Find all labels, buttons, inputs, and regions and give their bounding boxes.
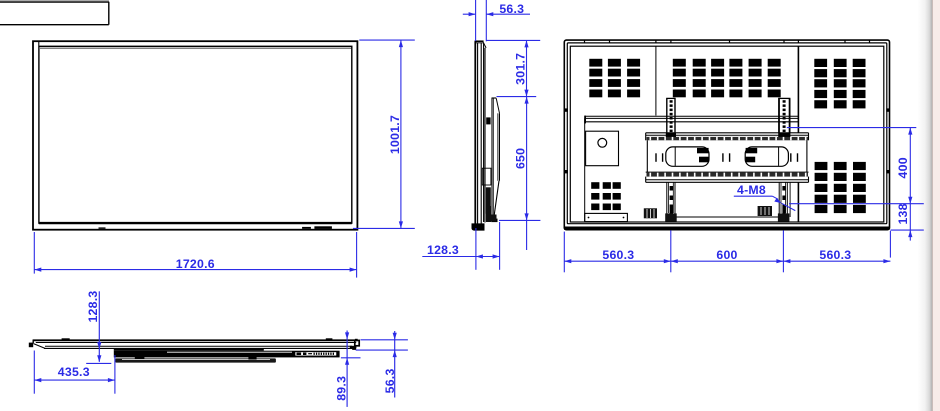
svg-text:400: 400 (896, 157, 910, 178)
svg-text:301.7: 301.7 (514, 53, 528, 85)
svg-text:138: 138 (896, 203, 910, 224)
svg-text:435.3: 435.3 (58, 365, 90, 379)
svg-text:560.3: 560.3 (819, 248, 851, 262)
svg-text:4-M8: 4-M8 (737, 183, 766, 197)
svg-text:1720.6: 1720.6 (176, 257, 215, 271)
svg-text:1001.7: 1001.7 (388, 115, 402, 154)
svg-text:89.3: 89.3 (335, 376, 349, 401)
svg-text:600: 600 (716, 248, 737, 262)
svg-text:128.3: 128.3 (427, 243, 459, 257)
svg-text:56.3: 56.3 (499, 2, 524, 16)
svg-text:56.3: 56.3 (383, 368, 397, 393)
svg-text:560.3: 560.3 (602, 248, 634, 262)
svg-text:128.3: 128.3 (86, 290, 100, 322)
svg-text:650: 650 (514, 148, 528, 169)
